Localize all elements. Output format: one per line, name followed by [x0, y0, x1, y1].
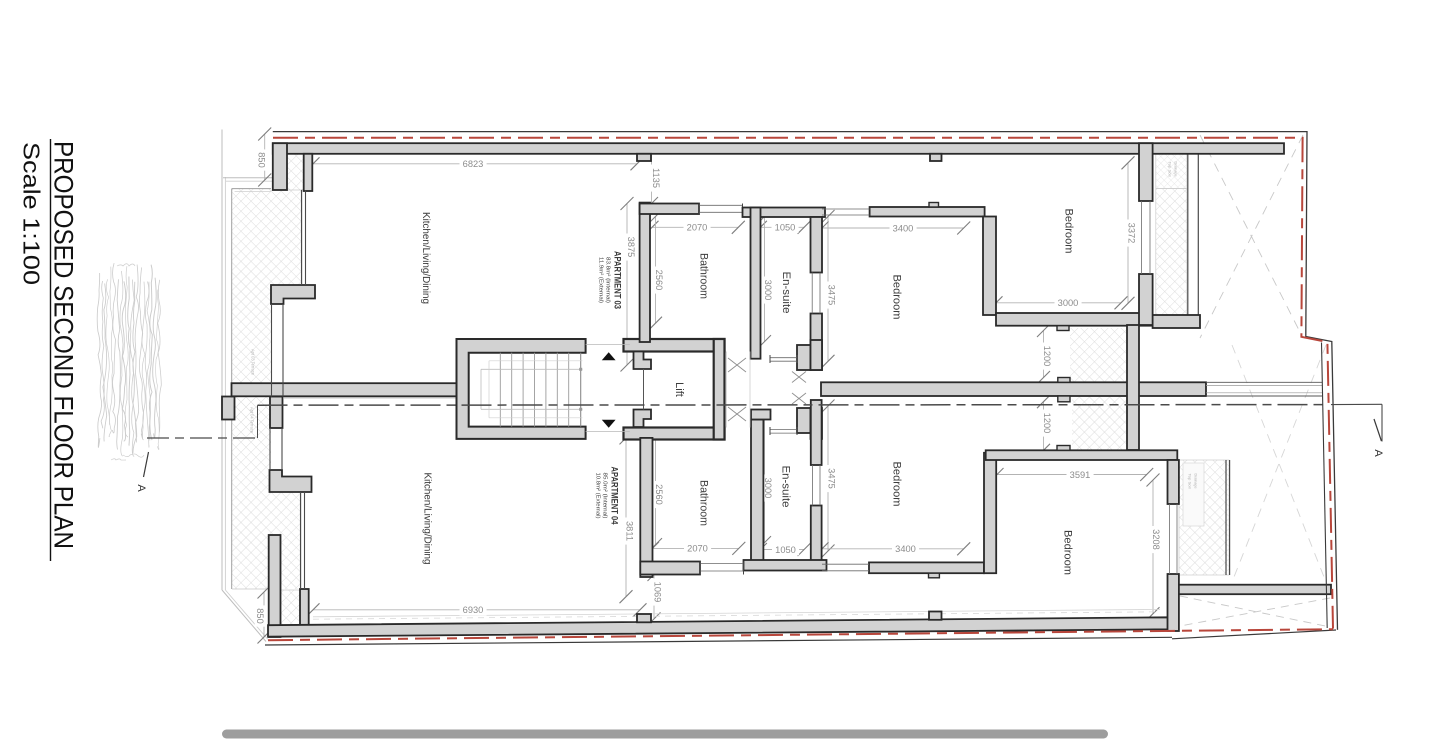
svg-text:En-suite: En-suite	[780, 272, 792, 314]
svg-text:83.8m² (Internal): 83.8m² (Internal)	[605, 257, 611, 303]
svg-text:Bedroom: Bedroom	[1063, 209, 1075, 254]
svg-text:Bathroom: Bathroom	[698, 253, 710, 299]
svg-text:A: A	[1372, 449, 1384, 457]
svg-text:1069: 1069	[653, 582, 663, 603]
svg-text:85.0m² (Internal): 85.0m² (Internal)	[602, 473, 608, 519]
svg-text:6930: 6930	[463, 605, 484, 615]
svg-text:Bedroom: Bedroom	[891, 275, 903, 320]
svg-text:3811: 3811	[625, 521, 635, 541]
svg-text:6823: 6823	[463, 159, 484, 169]
svg-text:Apt 04 Terrace: Apt 04 Terrace	[250, 407, 255, 434]
svg-text:3000: 3000	[1058, 298, 1079, 308]
svg-text:2560: 2560	[654, 484, 664, 505]
svg-text:3208: 3208	[1151, 529, 1161, 550]
svg-text:11.9m² (External): 11.9m² (External)	[598, 257, 604, 303]
svg-text:1200: 1200	[1042, 346, 1052, 367]
svg-text:En-suite: En-suite	[780, 466, 792, 508]
svg-text:Kitchen/Living/Dining: Kitchen/Living/Dining	[422, 473, 433, 565]
svg-text:3000: 3000	[763, 280, 773, 301]
svg-text:PROPOSED SECOND FLOOR PLAN: PROPOSED SECOND FLOOR PLAN	[49, 141, 79, 549]
svg-text:Apt 03 Terrace: Apt 03 Terrace	[251, 349, 256, 376]
svg-text:850: 850	[257, 152, 267, 168]
svg-text:1135: 1135	[651, 168, 661, 188]
svg-text:Lift: Lift	[673, 382, 685, 397]
svg-text:A: A	[135, 484, 147, 492]
svg-text:Kitchen/Living/Dining: Kitchen/Living/Dining	[420, 212, 431, 304]
svg-text:10.8m² (External): 10.8m² (External)	[595, 473, 601, 519]
svg-text:Drainage: Drainage	[1174, 162, 1179, 178]
svg-text:3400: 3400	[893, 223, 914, 233]
svg-text:3591: 3591	[1070, 470, 1091, 480]
svg-text:Bedroom: Bedroom	[891, 462, 903, 507]
svg-text:2560: 2560	[654, 270, 664, 291]
svg-text:3875: 3875	[626, 237, 636, 258]
svg-text:APARTMENT 04: APARTMENT 04	[610, 467, 620, 525]
svg-text:Top Soil: Top Soil	[1188, 474, 1193, 489]
svg-text:Top Soil: Top Soil	[1168, 162, 1173, 177]
svg-text:3475: 3475	[827, 285, 837, 306]
svg-text:Scale 1:100: Scale 1:100	[19, 142, 45, 285]
svg-text:APARTMENT 03: APARTMENT 03	[613, 251, 623, 309]
svg-text:2070: 2070	[687, 544, 708, 554]
svg-text:3372: 3372	[1127, 223, 1137, 244]
svg-text:Drainage: Drainage	[1194, 474, 1199, 490]
svg-text:3400: 3400	[895, 544, 916, 554]
svg-text:1200: 1200	[1042, 413, 1052, 434]
svg-text:1050: 1050	[775, 223, 796, 233]
svg-text:1050: 1050	[775, 545, 796, 555]
svg-text:3475: 3475	[827, 468, 837, 489]
svg-text:2070: 2070	[687, 223, 708, 233]
svg-text:3000: 3000	[763, 478, 773, 499]
svg-text:Bathroom: Bathroom	[698, 480, 710, 526]
svg-text:Bedroom: Bedroom	[1062, 530, 1074, 575]
svg-text:850: 850	[255, 608, 265, 624]
